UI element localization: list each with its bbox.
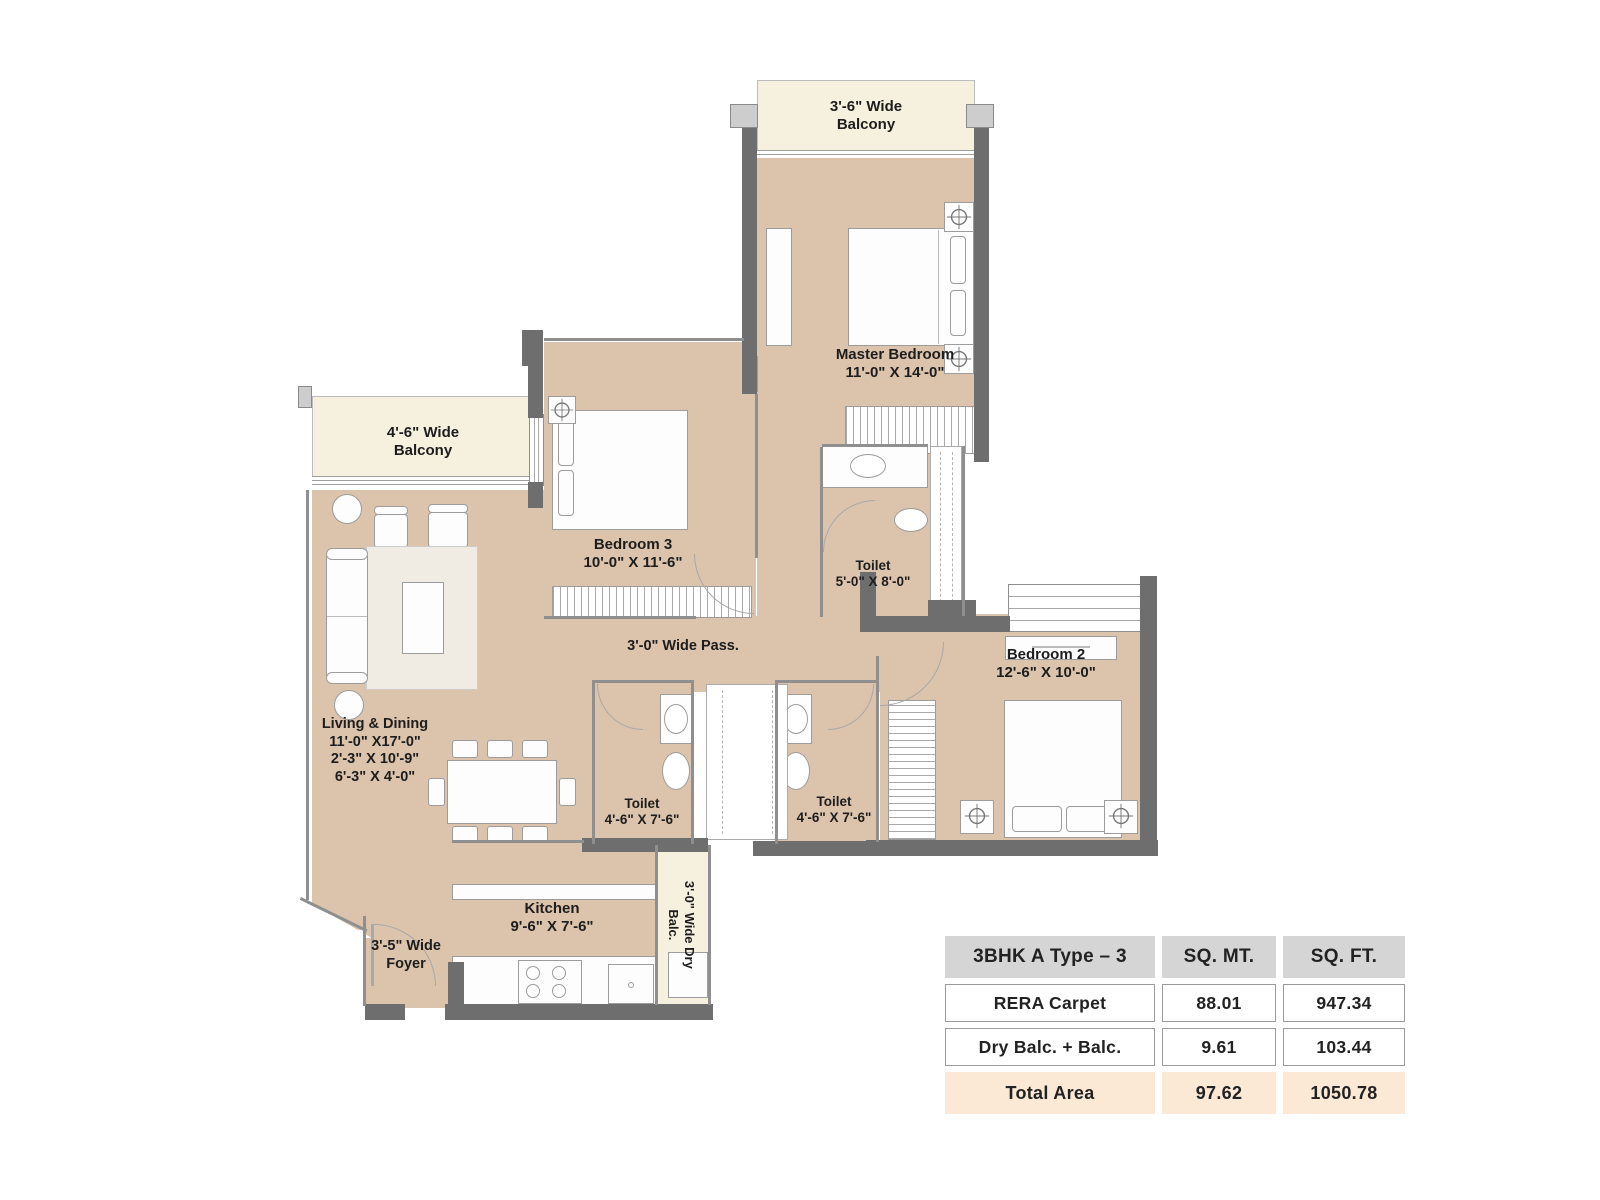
floorplan-page: 3'-6" Wide Balcony 4'-6" Wide Balcony Ma…	[0, 0, 1600, 1200]
bedroom2-wardrobe	[888, 700, 936, 840]
label-line: 4'-6" Wide	[348, 424, 498, 442]
label-line: Balc.	[665, 881, 681, 969]
wall-thin	[822, 444, 928, 447]
wall-thin	[820, 447, 823, 617]
room-name: Kitchen	[478, 900, 626, 918]
room-name: Living & Dining	[304, 716, 446, 734]
bedroom2-window	[1008, 584, 1148, 632]
wc	[662, 752, 690, 790]
label-line: 3'-0" Wide Pass.	[598, 638, 768, 656]
wall-bed2-top	[860, 616, 1010, 632]
wall-thin	[452, 840, 584, 843]
washbasin	[664, 704, 688, 734]
table-row-sqmt: 88.01	[1162, 984, 1276, 1022]
master-corridor-floor	[757, 452, 823, 618]
sofa-armrest	[326, 672, 368, 684]
wall-master-left	[742, 110, 757, 394]
room-name: Bedroom 3	[543, 536, 723, 554]
master-bed-blanket-line	[938, 230, 939, 344]
hob-burner	[552, 966, 566, 980]
hob-burner	[526, 966, 540, 980]
dining-chair	[522, 740, 548, 758]
bedroom2-label: Bedroom 2 12'-6" X 10'-0"	[956, 646, 1136, 683]
wall-thin	[306, 490, 309, 900]
wall-thin	[544, 616, 696, 619]
toilet-a-label: Toilet 4'-6" X 7'-6"	[592, 796, 692, 829]
wall-core-bottom	[753, 841, 868, 856]
top-balcony-label: 3'-6" Wide Balcony	[776, 98, 956, 135]
armchair	[428, 512, 468, 548]
washbasin	[850, 454, 886, 478]
area-table-col-sqmt: SQ. MT.	[1162, 936, 1276, 978]
room-dims: 10'-0" X 11'-6"	[543, 554, 723, 572]
duct-shaft	[930, 446, 962, 618]
room-dims: 11'-0" X17'-0"	[304, 734, 446, 752]
hob-burner	[526, 984, 540, 998]
wall-cap	[298, 386, 312, 408]
room-dims: 4'-6" X 7'-6"	[784, 810, 884, 826]
label-line: Foyer	[356, 956, 456, 974]
room-name: Bedroom 2	[956, 646, 1136, 664]
toilet-b-label: Toilet 4'-6" X 7'-6"	[784, 794, 884, 827]
room-name: Toilet	[784, 794, 884, 810]
foyer-label: 3'-5" Wide Foyer	[356, 938, 456, 973]
wall-thin	[544, 338, 744, 341]
left-balcony-label: 4'-6" Wide Balcony	[348, 424, 498, 461]
wc	[894, 508, 928, 532]
kitchen-platform	[452, 884, 656, 900]
dry-balcony-label: 3'-0" Wide Dry Balc.	[650, 845, 712, 1005]
shaft-dash	[772, 690, 773, 834]
wall-bed2-bottom	[866, 840, 1158, 856]
master-bed-pillow	[950, 236, 966, 284]
living-dining-label: Living & Dining 11'-0" X17'-0" 2'-3" X 1…	[304, 716, 446, 787]
room-dims: 12'-6" X 10'-0"	[956, 664, 1136, 682]
compass-icon	[963, 802, 991, 830]
duct-dash	[952, 452, 953, 612]
label-line: 3'-6" Wide	[776, 98, 956, 116]
label-line: Balcony	[776, 116, 956, 134]
table-row-sqmt: 9.61	[1162, 1028, 1276, 1066]
wall-thin	[775, 680, 778, 844]
wall-master-right	[974, 110, 989, 462]
label-line: 3'-0" Wide Dry	[681, 881, 697, 969]
room-dims: 2'-3" X 10'-9"	[304, 751, 446, 769]
wall-thin	[962, 446, 965, 616]
round-side-table	[332, 494, 362, 524]
wall-cap	[966, 104, 994, 128]
shaft-dash	[722, 690, 723, 834]
compass-icon	[548, 396, 576, 424]
armchair-back	[428, 504, 468, 513]
dining-chair	[487, 740, 513, 758]
bedroom2-bed-pillow	[1012, 806, 1062, 832]
compass-icon	[1107, 802, 1135, 830]
duct-dash	[940, 452, 941, 612]
room-dims: 11'-0" X 14'-0"	[805, 364, 985, 382]
dining-chair	[452, 740, 478, 758]
passage-label: 3'-0" Wide Pass.	[598, 638, 768, 656]
wall-thin	[778, 680, 878, 683]
coffee-table	[402, 582, 444, 654]
master-bed-pillow	[950, 290, 966, 336]
dining-table	[447, 760, 557, 824]
dining-chair	[559, 778, 576, 806]
left-balcony-railing	[312, 476, 540, 486]
armchair-back	[374, 506, 408, 515]
wall-bottom-exterior	[445, 1004, 713, 1020]
wall-cap	[730, 104, 758, 128]
bedroom3-bed-pillow	[558, 418, 574, 466]
table-total-sqft: 1050.78	[1283, 1072, 1405, 1114]
wall-bed3-left-lower	[528, 482, 543, 508]
area-table: 3BHK A Type – 3 SQ. MT. SQ. FT. RERA Car…	[945, 936, 1405, 1114]
bedroom3-bed-pillow	[558, 470, 574, 516]
wall-foyer-pier	[365, 1004, 405, 1020]
hob-burner	[552, 984, 566, 998]
sofa-armrest	[326, 548, 368, 560]
table-row-label: Dry Balc. + Balc.	[945, 1028, 1155, 1066]
wall-thin	[755, 394, 758, 558]
master-bedroom-label: Master Bedroom 11'-0" X 14'-0"	[805, 346, 985, 383]
area-table-col-sqft: SQ. FT.	[1283, 936, 1405, 978]
area-table-title: 3BHK A Type – 3	[945, 936, 1155, 978]
room-name: Master Bedroom	[805, 346, 985, 364]
master-side-cabinet	[766, 228, 792, 346]
compass-icon	[944, 202, 974, 232]
wall-thin	[595, 680, 691, 683]
toilet-master-label: Toilet 5'-0" X 8'-0"	[820, 558, 926, 591]
room-dims: 4'-6" X 7'-6"	[592, 812, 692, 828]
room-name: Toilet	[592, 796, 692, 812]
sofa-cushion-line	[327, 616, 367, 617]
table-row-label: RERA Carpet	[945, 984, 1155, 1022]
table-total-label: Total Area	[945, 1072, 1155, 1114]
bedroom3-window	[529, 414, 544, 486]
bedroom3-label: Bedroom 3 10'-0" X 11'-6"	[543, 536, 723, 573]
room-dims: 9'-6" X 7'-6"	[478, 918, 626, 936]
armchair	[374, 514, 408, 548]
label-line: Balcony	[348, 442, 498, 460]
wall-bed2-right	[1140, 576, 1157, 842]
label-line: 3'-5" Wide	[356, 938, 456, 956]
wall-bed3-left	[528, 330, 543, 418]
kitchen-label: Kitchen 9'-6" X 7'-6"	[478, 900, 626, 937]
kitchen-sink-drain	[628, 982, 634, 988]
room-name: Toilet	[820, 558, 926, 574]
table-row-sqft: 947.34	[1283, 984, 1405, 1022]
room-dims: 5'-0" X 8'-0"	[820, 574, 926, 590]
table-total-sqmt: 97.62	[1162, 1072, 1276, 1114]
table-row-sqft: 103.44	[1283, 1028, 1405, 1066]
room-dims: 6'-3" X 4'-0"	[304, 769, 446, 787]
